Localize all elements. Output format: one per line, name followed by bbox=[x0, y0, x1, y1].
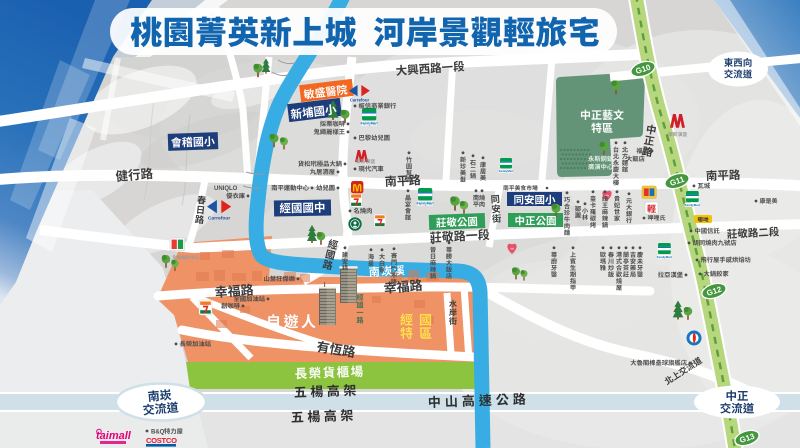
svg-text:FamilyMart: FamilyMart bbox=[657, 255, 672, 259]
svg-text:COSTCO: COSTCO bbox=[146, 436, 177, 445]
svg-text:Carrefour: Carrefour bbox=[208, 215, 231, 221]
svg-text:FamilyMart: FamilyMart bbox=[685, 203, 700, 207]
svg-text:FamilyMart: FamilyMart bbox=[499, 169, 513, 173]
svg-text:Carrefour: Carrefour bbox=[350, 98, 370, 103]
svg-text:B&Q: B&Q bbox=[151, 430, 165, 436]
svg-text:UNIQLO: UNIQLO bbox=[214, 186, 238, 192]
svg-text:FamilyMart: FamilyMart bbox=[361, 122, 379, 126]
svg-text:FamilyMart: FamilyMart bbox=[417, 202, 435, 206]
